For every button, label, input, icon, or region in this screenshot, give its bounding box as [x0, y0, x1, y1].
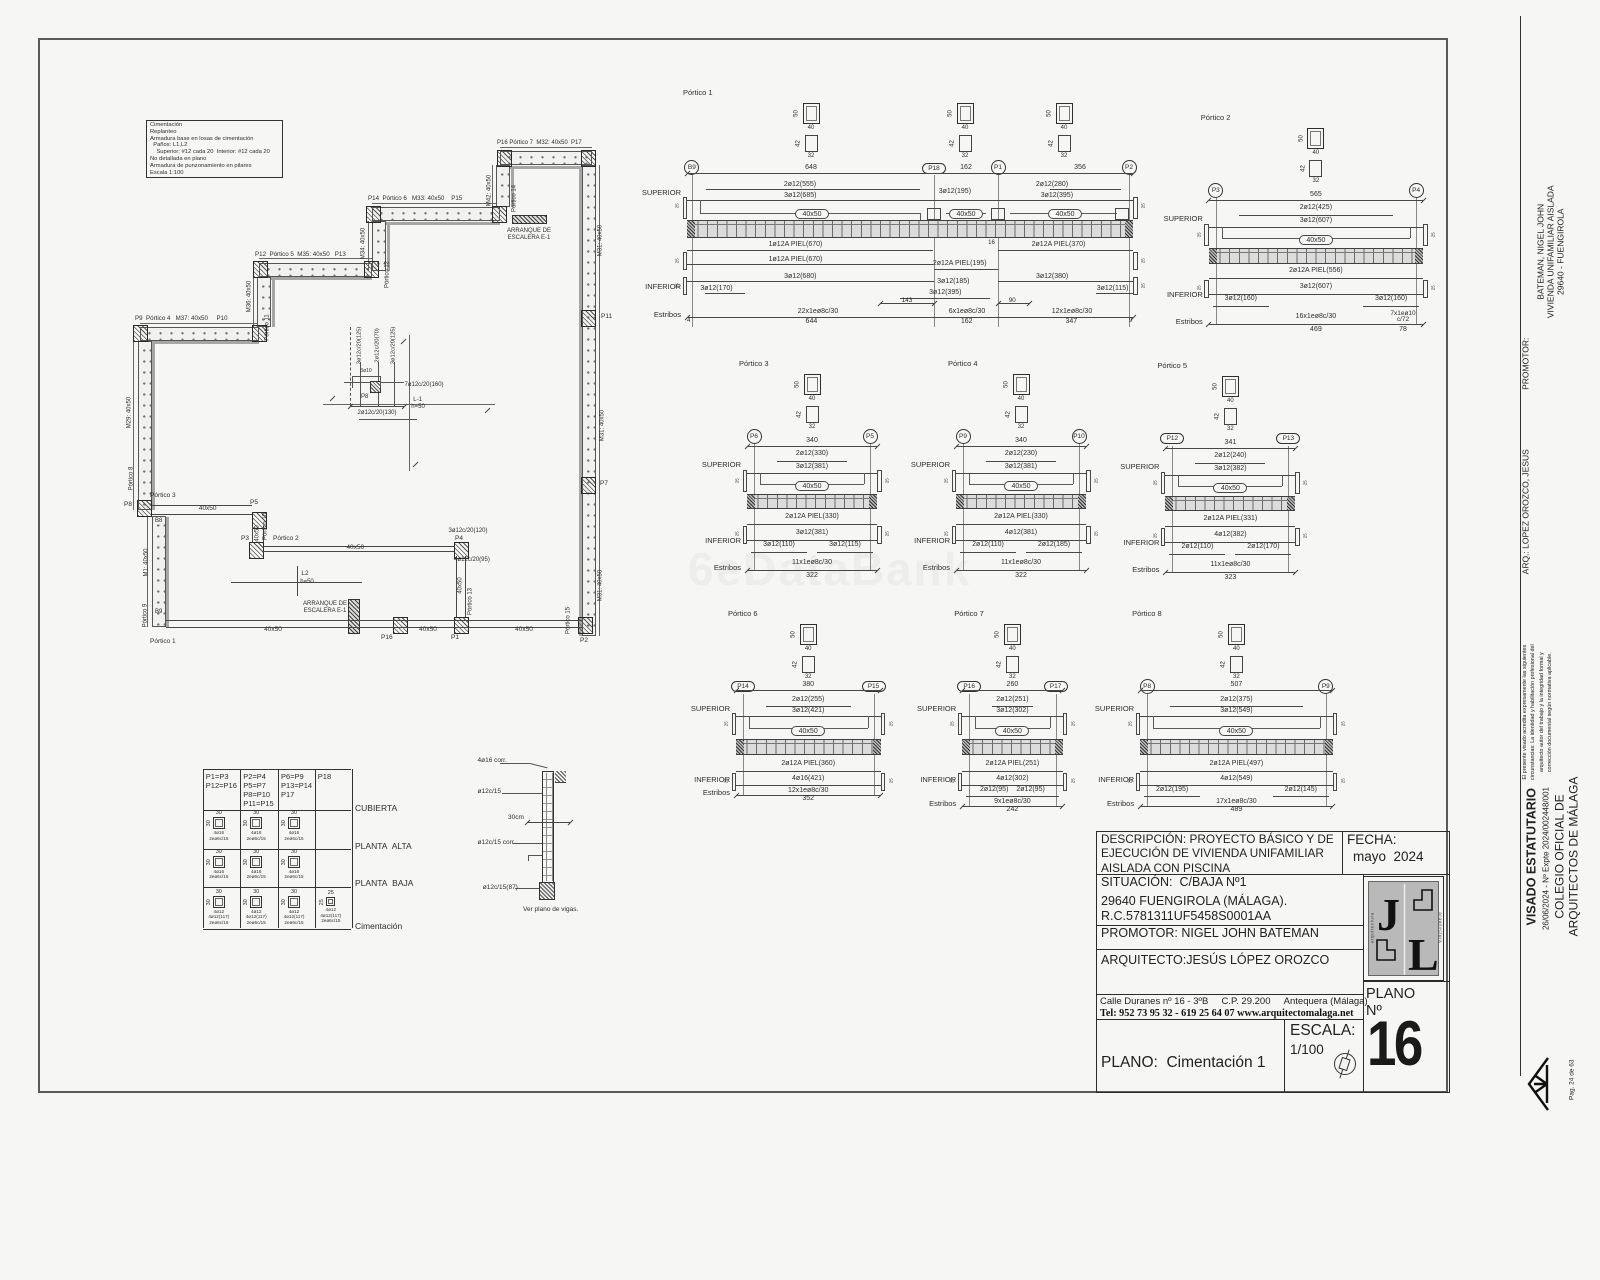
svg-text:L: L [1408, 929, 1439, 977]
svg-text:J: J [1377, 889, 1400, 940]
